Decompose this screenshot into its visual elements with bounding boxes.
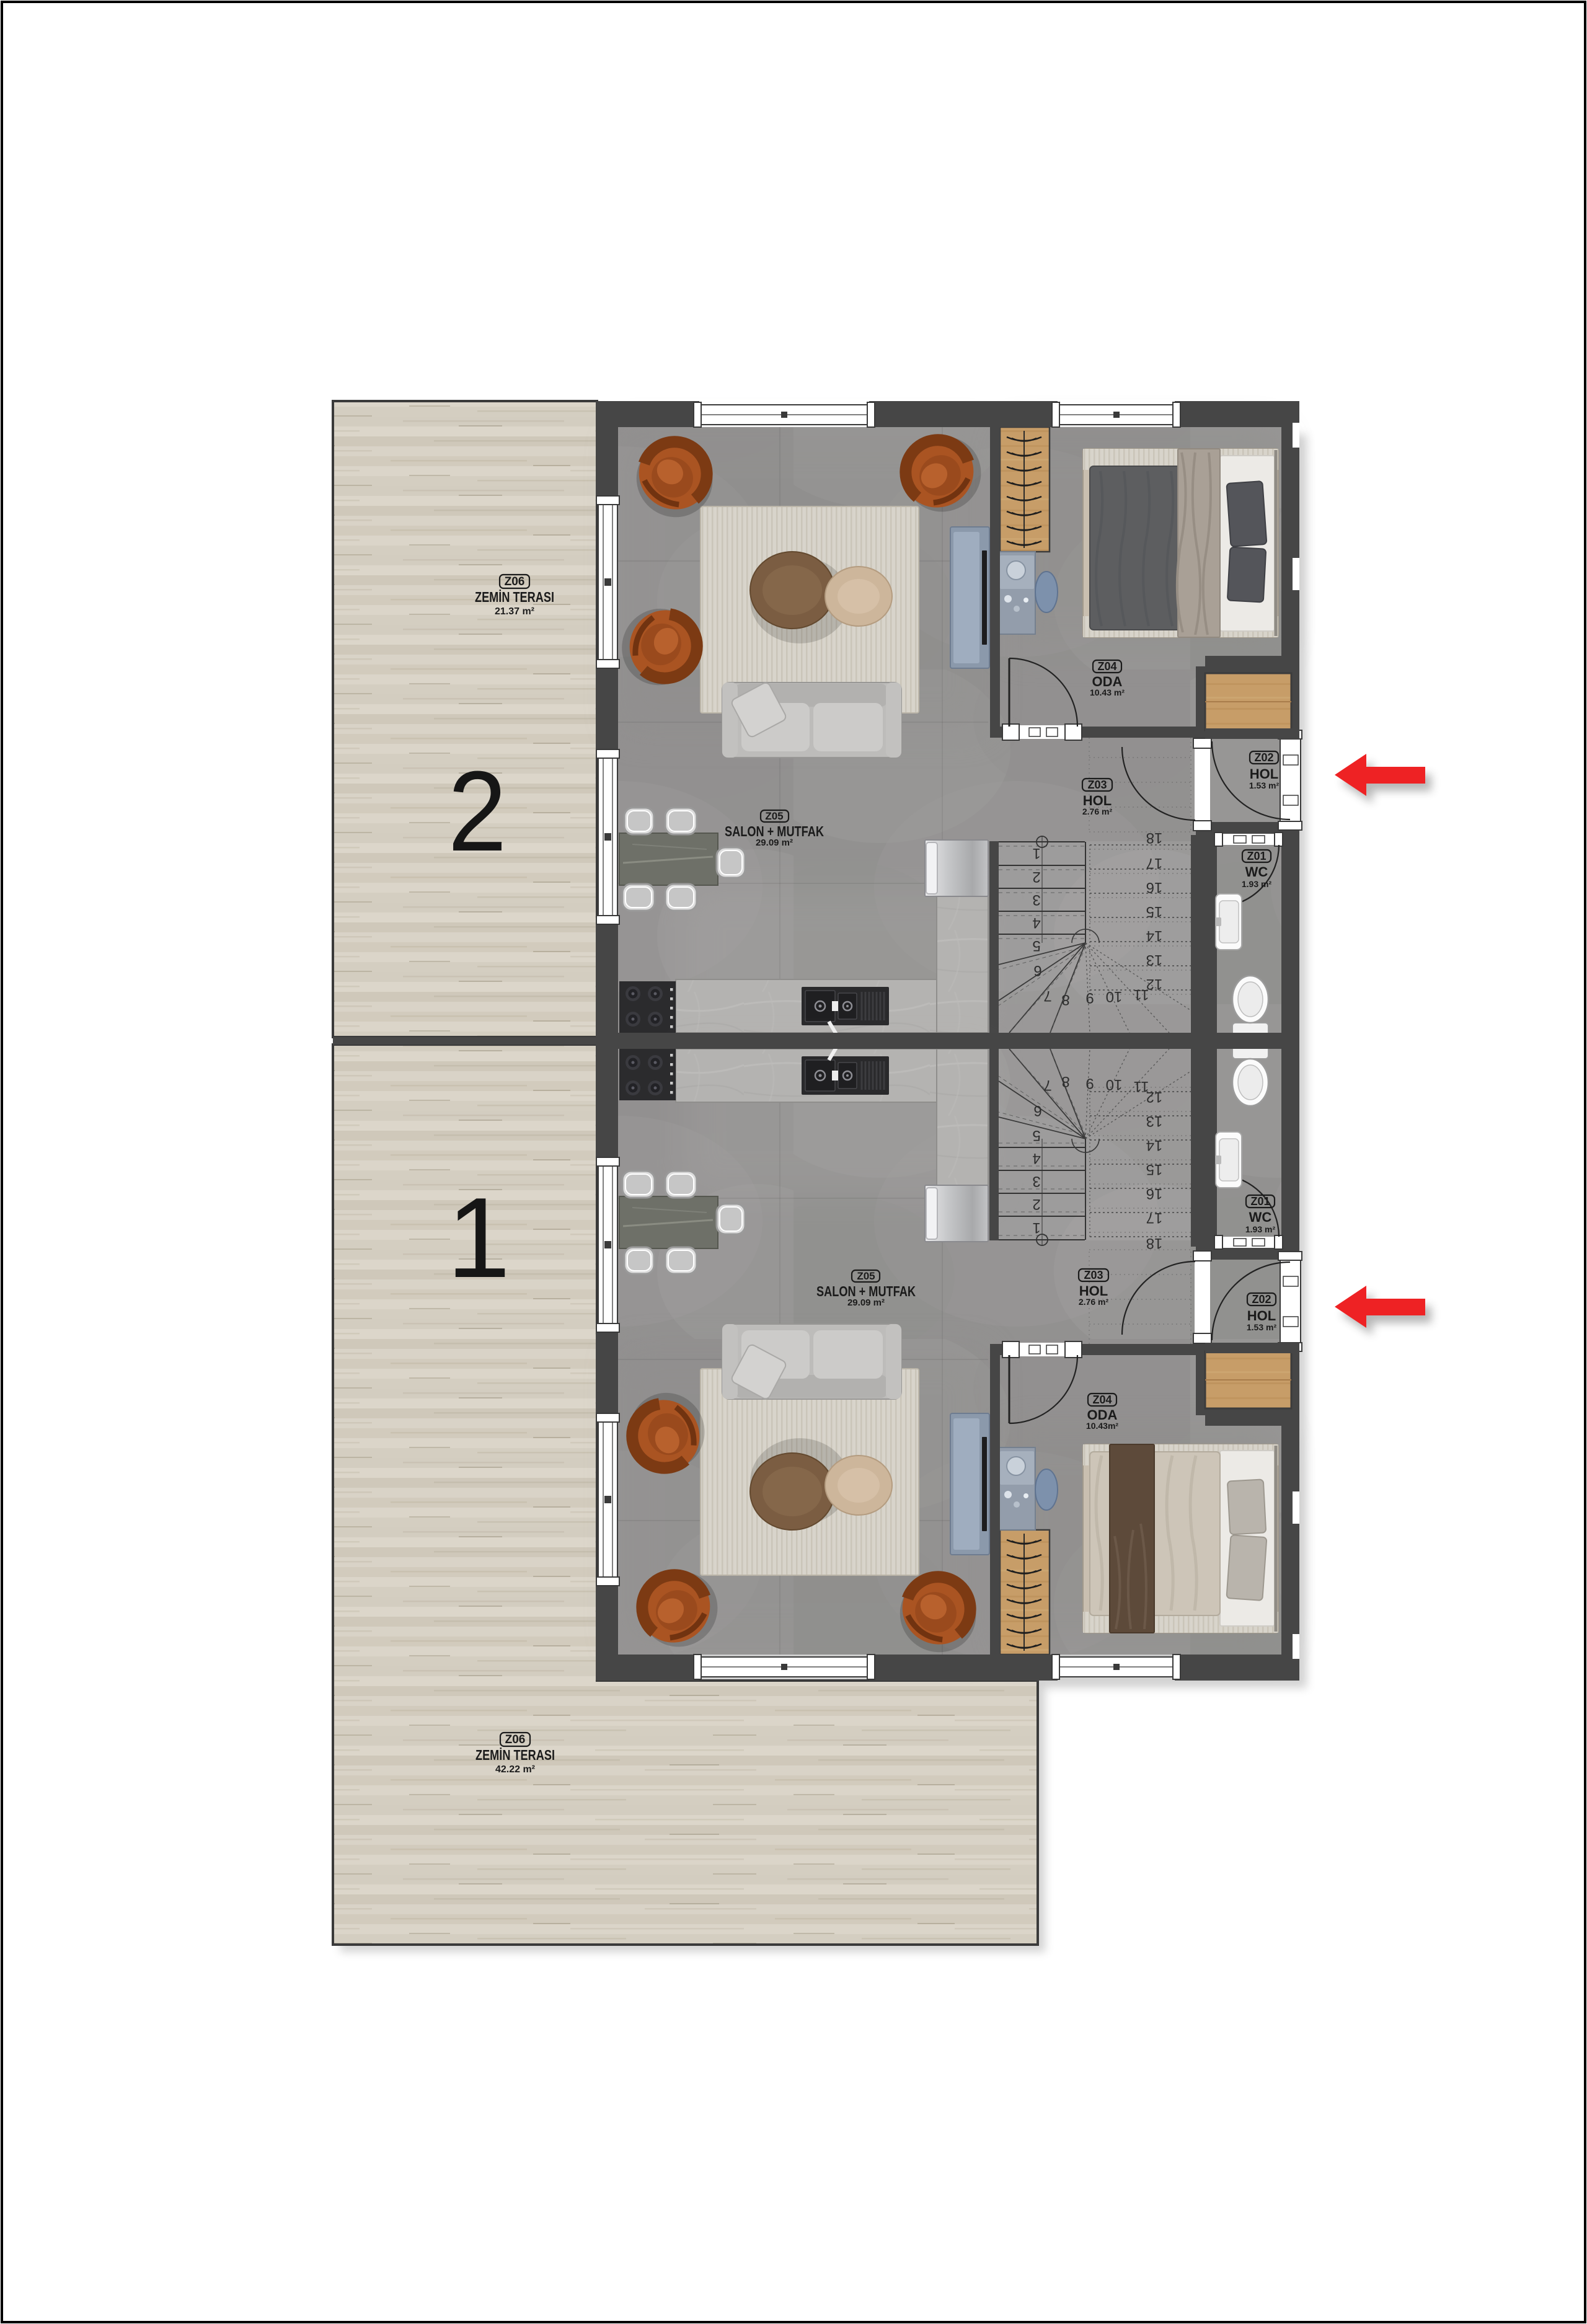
svg-text:2: 2 [448, 747, 507, 875]
svg-text:2: 2 [1032, 868, 1040, 885]
svg-text:1: 1 [1032, 1219, 1040, 1236]
svg-text:10.43 m²: 10.43 m² [1090, 687, 1125, 697]
svg-text:42.22 m²: 42.22 m² [495, 1764, 535, 1775]
svg-text:15: 15 [1146, 903, 1163, 920]
svg-text:4: 4 [1032, 914, 1040, 931]
svg-text:Z03: Z03 [1084, 1269, 1103, 1281]
svg-text:8: 8 [1061, 1073, 1069, 1090]
svg-text:16: 16 [1146, 1185, 1163, 1202]
svg-text:Z01: Z01 [1250, 1195, 1270, 1208]
svg-text:18: 18 [1146, 1235, 1163, 1252]
svg-text:9: 9 [1085, 989, 1094, 1006]
svg-text:14: 14 [1146, 927, 1163, 944]
svg-text:29.09 m²: 29.09 m² [847, 1297, 885, 1308]
svg-text:Z06: Z06 [505, 1733, 526, 1746]
svg-text:17: 17 [1146, 1209, 1163, 1226]
svg-text:1.53 m²: 1.53 m² [1249, 780, 1280, 790]
svg-text:10.43m²: 10.43m² [1086, 1421, 1118, 1431]
svg-text:1.53 m²: 1.53 m² [1247, 1322, 1277, 1332]
svg-text:6: 6 [1033, 962, 1041, 979]
svg-text:2.76 m²: 2.76 m² [1082, 806, 1113, 816]
svg-text:3: 3 [1032, 1173, 1040, 1190]
svg-text:ZEMİN TERASI: ZEMİN TERASI [475, 1747, 555, 1763]
svg-text:WC: WC [1249, 1209, 1272, 1225]
svg-text:5: 5 [1032, 1127, 1040, 1144]
svg-text:11: 11 [1134, 986, 1149, 1003]
svg-text:Z02: Z02 [1252, 1293, 1271, 1306]
svg-text:Z03: Z03 [1087, 779, 1107, 791]
svg-text:3: 3 [1032, 891, 1040, 908]
svg-text:2: 2 [1032, 1196, 1040, 1213]
svg-text:Z04: Z04 [1097, 660, 1116, 673]
svg-text:1.93 m²: 1.93 m² [1245, 1224, 1276, 1234]
svg-text:29.09 m²: 29.09 m² [756, 837, 793, 848]
svg-text:Z05: Z05 [857, 1270, 875, 1282]
svg-text:11: 11 [1134, 1078, 1149, 1095]
svg-text:Z01: Z01 [1247, 850, 1266, 862]
svg-text:6: 6 [1033, 1102, 1041, 1119]
svg-text:10: 10 [1106, 988, 1123, 1005]
svg-text:Z06: Z06 [505, 575, 525, 588]
svg-text:4: 4 [1032, 1150, 1040, 1167]
svg-text:15: 15 [1146, 1161, 1163, 1178]
svg-text:HOL: HOL [1250, 766, 1278, 782]
svg-text:10: 10 [1106, 1076, 1123, 1093]
svg-text:21.37 m²: 21.37 m² [495, 606, 534, 617]
svg-text:WC: WC [1245, 864, 1268, 880]
svg-text:Z05: Z05 [765, 810, 783, 822]
svg-text:2.76 m²: 2.76 m² [1079, 1297, 1109, 1307]
svg-text:7: 7 [1043, 1077, 1051, 1094]
svg-text:8: 8 [1061, 991, 1069, 1008]
svg-text:13: 13 [1146, 1113, 1163, 1129]
svg-text:1.93 m²: 1.93 m² [1242, 879, 1272, 889]
svg-text:HOL: HOL [1247, 1308, 1276, 1323]
svg-text:5: 5 [1032, 937, 1040, 954]
svg-text:18: 18 [1146, 829, 1163, 846]
svg-text:1: 1 [447, 1173, 510, 1301]
svg-text:Z04: Z04 [1092, 1394, 1112, 1406]
svg-text:1: 1 [1032, 845, 1040, 862]
svg-text:13: 13 [1146, 952, 1163, 968]
svg-text:Z02: Z02 [1254, 751, 1273, 764]
svg-text:ZEMİN TERASI: ZEMİN TERASI [475, 589, 554, 605]
svg-text:7: 7 [1043, 987, 1051, 1004]
svg-text:16: 16 [1146, 879, 1163, 896]
svg-text:9: 9 [1085, 1075, 1094, 1092]
svg-text:14: 14 [1146, 1137, 1163, 1154]
svg-text:17: 17 [1146, 855, 1163, 872]
